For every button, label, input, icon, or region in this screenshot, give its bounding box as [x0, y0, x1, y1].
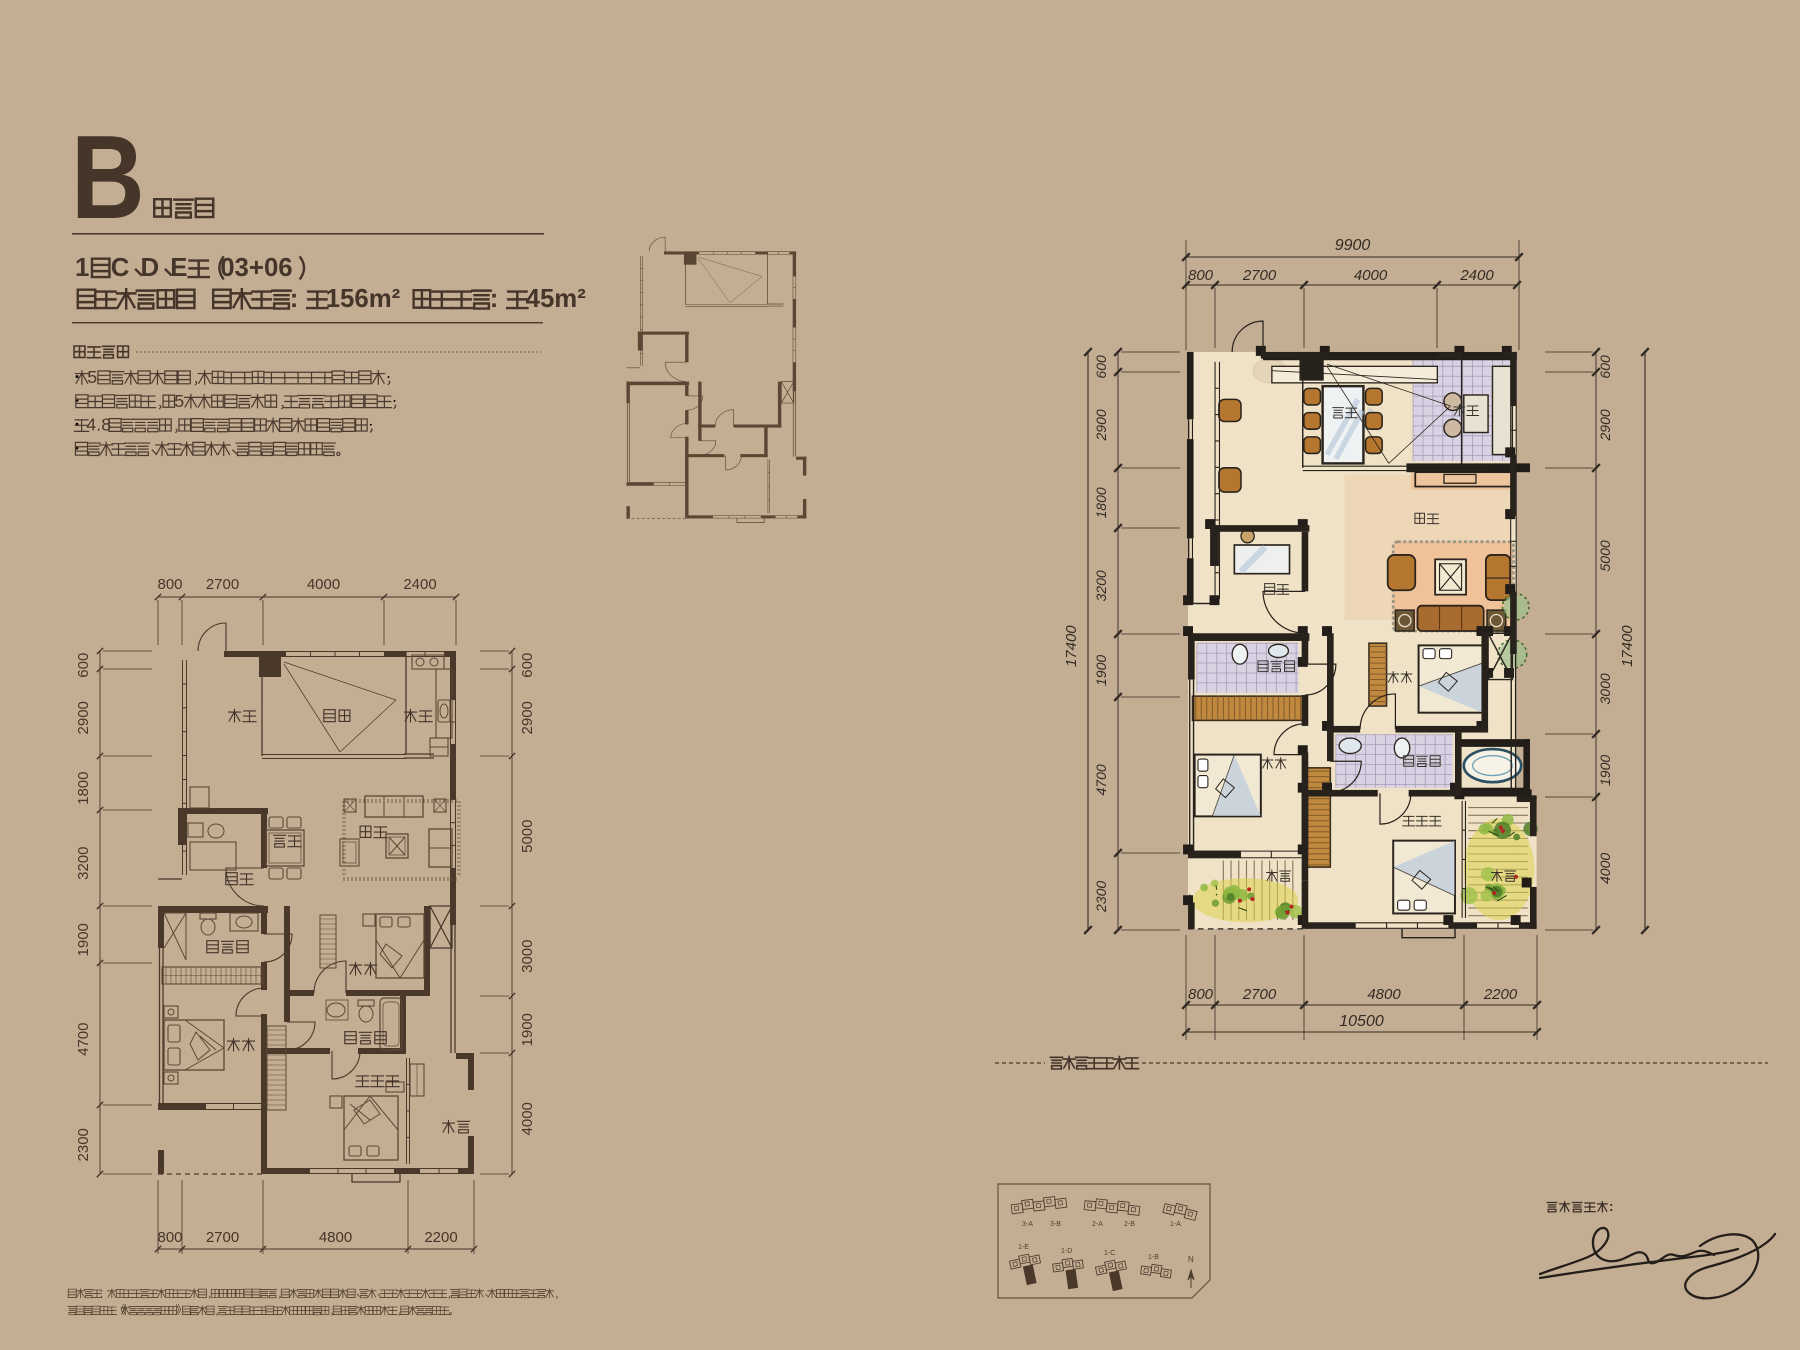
svg-text:5: 5 [174, 391, 184, 411]
svg-text:4.8: 4.8 [86, 415, 111, 435]
svg-text:2900: 2900 [1093, 409, 1109, 441]
svg-text:D: D [141, 254, 160, 282]
svg-text:3-B: 3-B [1050, 1221, 1061, 1228]
svg-text:156m²: 156m² [326, 285, 401, 313]
svg-text:3200: 3200 [75, 847, 92, 880]
svg-text:C: C [111, 254, 130, 282]
svg-text:1900: 1900 [519, 1013, 536, 1046]
svg-text:5000: 5000 [519, 820, 536, 853]
svg-text:E: E [170, 254, 187, 282]
svg-text:4000: 4000 [519, 1102, 536, 1135]
svg-text:4800: 4800 [319, 1229, 352, 1246]
svg-text:3200: 3200 [1093, 570, 1109, 601]
svg-text:2900: 2900 [75, 701, 92, 734]
svg-text:《: 《 [115, 1303, 127, 1317]
svg-text:4800: 4800 [1367, 986, 1401, 1003]
svg-text:2900: 2900 [519, 701, 536, 734]
svg-text:4000: 4000 [307, 576, 340, 593]
svg-text:3-A: 3-A [1022, 1221, 1033, 1228]
svg-text:10500: 10500 [1339, 1013, 1384, 1030]
svg-text:4700: 4700 [75, 1023, 92, 1056]
svg-text:1-B: 1-B [1148, 1254, 1159, 1261]
svg-text:17400: 17400 [1619, 625, 1636, 667]
svg-text:45m²: 45m² [526, 285, 587, 313]
svg-text::: : [490, 285, 499, 313]
svg-text:3000: 3000 [519, 940, 536, 973]
svg-text:2700: 2700 [1242, 986, 1277, 1003]
svg-text:800: 800 [1188, 986, 1214, 1003]
svg-text:2400: 2400 [403, 576, 436, 593]
svg-text:2300: 2300 [1093, 881, 1109, 913]
svg-text:1-A: 1-A [1170, 1221, 1181, 1228]
svg-text:4000: 4000 [1597, 853, 1613, 884]
svg-text::: : [1609, 1199, 1613, 1214]
svg-text:1-C: 1-C [1104, 1250, 1115, 1257]
svg-text:5: 5 [87, 367, 97, 387]
svg-text:N: N [1188, 1255, 1194, 1264]
svg-text:2900: 2900 [1597, 409, 1613, 441]
svg-text:2400: 2400 [1459, 267, 1494, 284]
svg-text:600: 600 [519, 653, 536, 678]
svg-text:800: 800 [157, 576, 182, 593]
svg-text:2700: 2700 [206, 1229, 239, 1246]
svg-text:1900: 1900 [75, 923, 92, 956]
svg-text:1: 1 [75, 254, 89, 282]
svg-text:1800: 1800 [75, 772, 92, 805]
svg-text:3000: 3000 [1597, 673, 1613, 704]
svg-text:1-D: 1-D [1061, 1248, 1072, 1255]
svg-text:800: 800 [157, 1229, 182, 1246]
svg-text:4000: 4000 [1354, 267, 1388, 284]
svg-text:4700: 4700 [1093, 764, 1109, 795]
svg-text:2300: 2300 [75, 1128, 92, 1161]
svg-text:600: 600 [1093, 355, 1109, 379]
svg-text:600: 600 [75, 653, 92, 678]
svg-text:1900: 1900 [1597, 755, 1613, 786]
svg-text:03+06: 03+06 [220, 254, 292, 282]
svg-text:600: 600 [1597, 355, 1613, 379]
svg-text::: : [290, 285, 299, 313]
svg-text:2200: 2200 [1483, 986, 1518, 1003]
svg-text:800: 800 [1188, 267, 1214, 284]
svg-text:9900: 9900 [1335, 237, 1371, 254]
svg-text:2200: 2200 [424, 1229, 457, 1246]
svg-text:2700: 2700 [1242, 267, 1277, 284]
svg-text:1-E: 1-E [1018, 1244, 1029, 1251]
svg-text:5000: 5000 [1597, 540, 1613, 571]
svg-text:17400: 17400 [1063, 625, 1080, 667]
svg-text:2700: 2700 [206, 576, 239, 593]
svg-text:2-B: 2-B [1124, 1221, 1135, 1228]
svg-text:1900: 1900 [1093, 655, 1109, 686]
svg-text:1800: 1800 [1093, 487, 1109, 518]
svg-text::: : [100, 1286, 103, 1300]
svg-text:B: B [71, 112, 145, 244]
svg-text:2-A: 2-A [1092, 1221, 1103, 1228]
